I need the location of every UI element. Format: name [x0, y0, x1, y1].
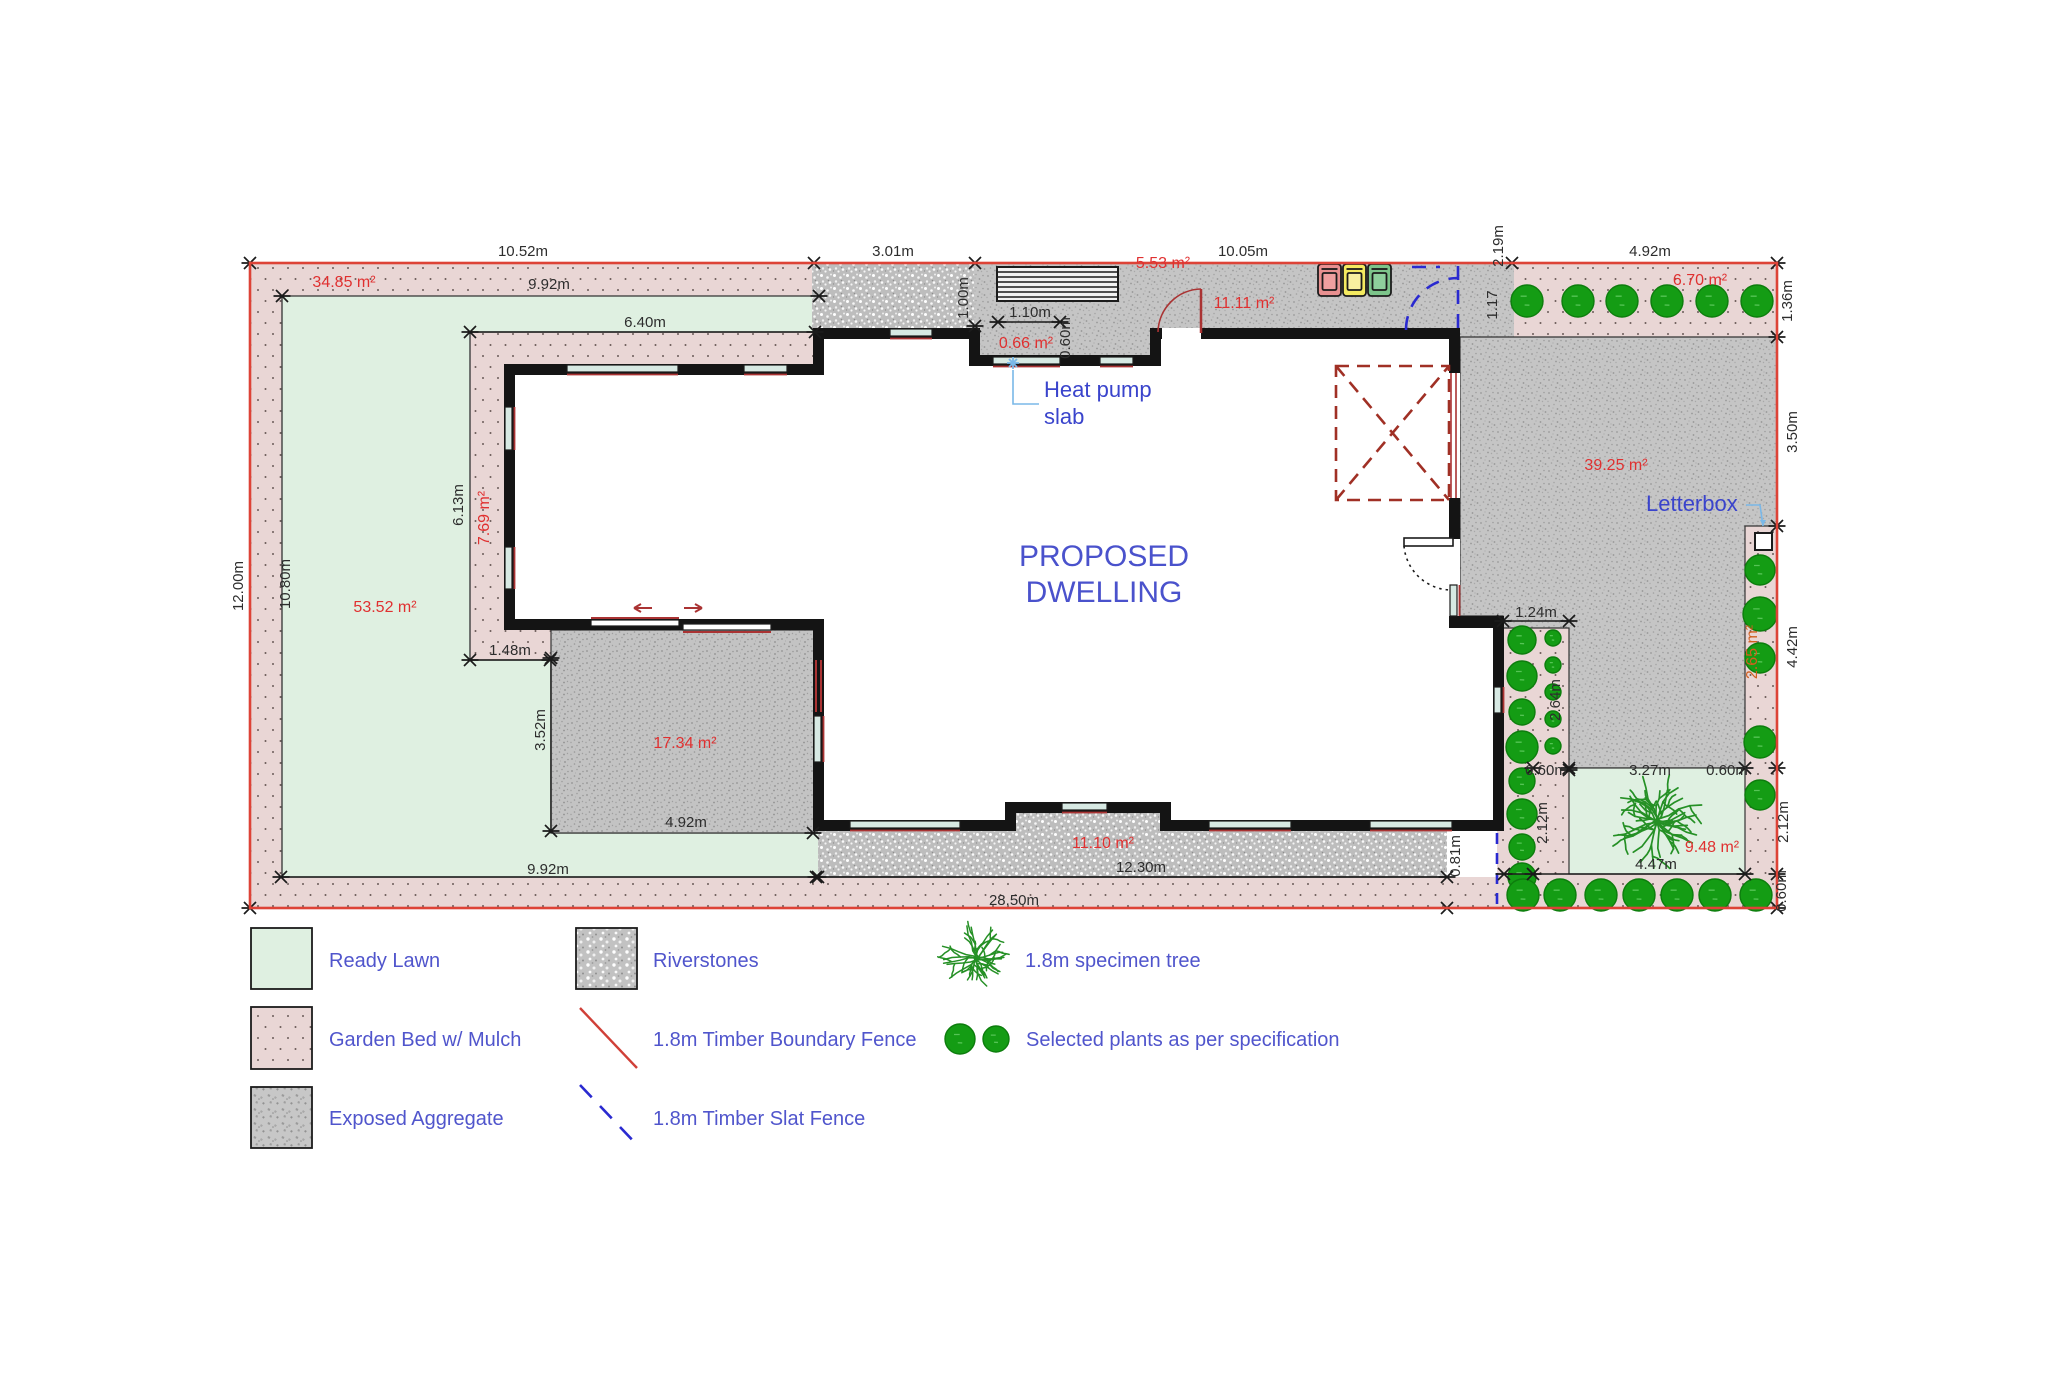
svg-text:53.52 m²: 53.52 m²	[353, 599, 417, 616]
svg-text:9.48 m²: 9.48 m²	[1685, 839, 1740, 856]
svg-text:Ready Lawn: Ready Lawn	[329, 950, 440, 972]
svg-text:9.92m: 9.92m	[527, 861, 569, 878]
svg-text:2.12m: 2.12m	[1775, 801, 1792, 843]
svg-text:0.81m: 0.81m	[1447, 835, 1464, 877]
svg-text:10.05m: 10.05m	[1218, 243, 1268, 260]
svg-text:12.00m: 12.00m	[230, 561, 247, 611]
svg-text:Letterbox: Letterbox	[1646, 491, 1738, 516]
svg-text:4.92m: 4.92m	[665, 814, 707, 831]
svg-text:Riverstones: Riverstones	[653, 950, 759, 972]
svg-text:0.60m: 0.60m	[1773, 870, 1790, 912]
svg-text:0.66 m²: 0.66 m²	[999, 335, 1054, 352]
svg-text:1.17: 1.17	[1484, 290, 1501, 319]
svg-text:Garden Bed w/ Mulch: Garden Bed w/ Mulch	[329, 1029, 521, 1051]
svg-text:PROPOSED: PROPOSED	[1019, 540, 1189, 573]
svg-text:9.92m: 9.92m	[528, 276, 570, 293]
svg-text:1.00m: 1.00m	[955, 277, 972, 319]
svg-text:4.92m: 4.92m	[1629, 243, 1671, 260]
svg-text:1.24m: 1.24m	[1515, 604, 1557, 621]
svg-text:4.47m: 4.47m	[1635, 856, 1677, 873]
svg-text:10.80m: 10.80m	[277, 559, 294, 609]
svg-text:2.65 m²: 2.65 m²	[1744, 624, 1761, 679]
svg-text:1.8m Timber Boundary Fence: 1.8m Timber Boundary Fence	[653, 1029, 916, 1051]
svg-text:2.19m: 2.19m	[1490, 225, 1507, 267]
svg-text:4.42m: 4.42m	[1784, 626, 1801, 668]
svg-text:3.50m: 3.50m	[1784, 411, 1801, 453]
svg-text:10.52m: 10.52m	[498, 243, 548, 260]
svg-text:1.8m Timber Slat Fence: 1.8m Timber Slat Fence	[653, 1108, 865, 1130]
svg-text:Heat pump: Heat pump	[1044, 377, 1152, 402]
svg-text:0.60m: 0.60m	[1525, 762, 1567, 779]
svg-text:slab: slab	[1044, 404, 1084, 429]
svg-text:34.85 m²: 34.85 m²	[312, 274, 376, 291]
svg-text:0.60m: 0.60m	[1706, 762, 1748, 779]
svg-text:6.13m: 6.13m	[450, 484, 467, 526]
svg-text:11.11 m²: 11.11 m²	[1214, 295, 1275, 312]
svg-text:6.70 m²: 6.70 m²	[1673, 272, 1728, 289]
svg-text:3.52m: 3.52m	[532, 709, 549, 751]
svg-text:Selected plants as per specifi: Selected plants as per specification	[1026, 1029, 1340, 1051]
svg-text:12.30m: 12.30m	[1116, 859, 1166, 876]
svg-text:28.50m: 28.50m	[989, 892, 1039, 909]
svg-text:3.27m: 3.27m	[1629, 762, 1671, 779]
svg-text:2.64m: 2.64m	[1547, 679, 1564, 721]
svg-text:5.53 m²: 5.53 m²	[1136, 255, 1191, 272]
svg-text:DWELLING: DWELLING	[1026, 576, 1183, 609]
svg-text:0.60m: 0.60m	[1057, 317, 1074, 359]
svg-text:1.36m: 1.36m	[1779, 280, 1796, 322]
svg-text:7.69 m²: 7.69 m²	[476, 490, 493, 545]
svg-text:3.01m: 3.01m	[872, 243, 914, 260]
svg-text:1.8m specimen tree: 1.8m specimen tree	[1025, 950, 1201, 972]
svg-text:6.40m: 6.40m	[624, 314, 666, 331]
svg-text:Exposed Aggregate: Exposed Aggregate	[329, 1108, 504, 1130]
svg-text:11.10 m²: 11.10 m²	[1072, 835, 1135, 852]
svg-text:17.34 m²: 17.34 m²	[653, 735, 717, 752]
svg-text:1.10m: 1.10m	[1009, 304, 1051, 321]
svg-text:1.48m: 1.48m	[489, 642, 531, 659]
svg-text:39.25 m²: 39.25 m²	[1584, 457, 1648, 474]
svg-text:2.12m: 2.12m	[1534, 802, 1551, 844]
